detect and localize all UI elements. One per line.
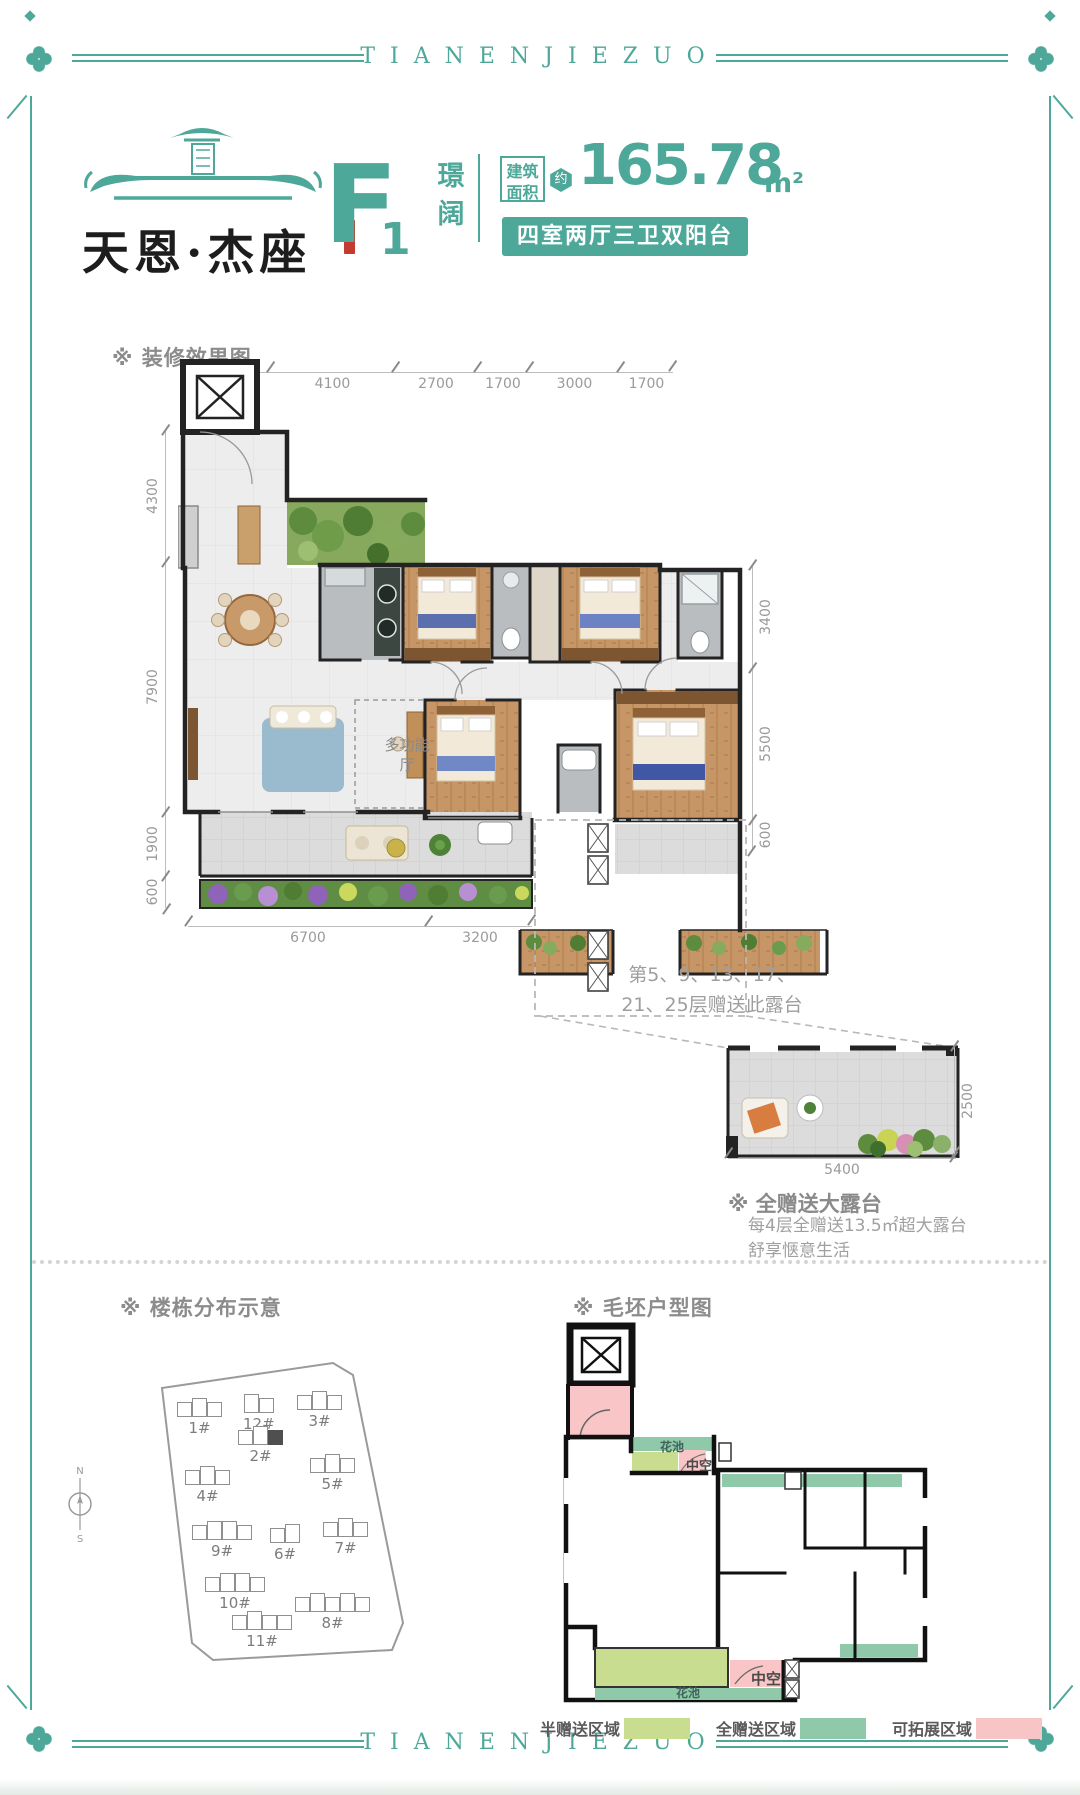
void-label: 中空 — [742, 1668, 790, 1689]
pavilion-roof-logo-icon — [84, 118, 352, 210]
terrace-floors-note: 第5、9、13、17、 21、25层赠送此露台 — [612, 960, 812, 1020]
building-8: 8# — [295, 1593, 370, 1632]
unit-alias: 璟阔 — [436, 158, 466, 234]
dim-label: 7900 — [145, 669, 161, 705]
dim-label: 5400 — [824, 1162, 860, 1178]
terrace-desc: 每4层全赠送13.5㎡超大露台 舒享惬意生活 — [748, 1214, 967, 1264]
dining-table-icon — [212, 594, 289, 647]
legend-swatch — [800, 1718, 866, 1739]
building-7: 7# — [323, 1518, 368, 1557]
area-value: 165.78 — [578, 138, 782, 194]
dim-label: 4300 — [145, 478, 161, 514]
ac-unit-icons — [588, 824, 608, 991]
building-3: 3# — [297, 1391, 342, 1430]
corner-flourish — [7, 95, 28, 119]
building-9: 9# — [192, 1521, 252, 1560]
building-4: 4# — [185, 1466, 230, 1505]
building-11: 11# — [232, 1611, 292, 1650]
flower-bed-label: 花池 — [652, 1438, 692, 1455]
clover-ornament-icon — [1028, 46, 1054, 72]
building-2-highlighted: 2# — [238, 1426, 283, 1465]
section-title-site: ※ 楼栋分布示意 — [120, 1292, 282, 1322]
frame-left-line — [30, 96, 32, 1710]
bed-icon — [437, 706, 495, 781]
area-unit: m² — [764, 168, 804, 199]
flower-bed-label: 花池 — [668, 1684, 708, 1701]
terrace-detail-drawing — [726, 1045, 958, 1158]
dim-label: 1900 — [145, 826, 161, 862]
site-map: 1# 12# 3# 2# 4# 5# 9# 6# — [120, 1360, 450, 1690]
clover-ornament-icon — [26, 46, 52, 72]
legend-swatch — [624, 1718, 690, 1739]
corner-flourish — [7, 1685, 28, 1709]
corner-diamond — [1044, 10, 1055, 21]
dim-label: 600 — [145, 879, 161, 906]
legend-item-full-gift: 全赠送区域 — [716, 1716, 866, 1740]
approx-hexagon-badge: 约 — [549, 168, 573, 192]
dims-terrace-depth: 2500 — [954, 1046, 980, 1156]
brand-name: 天恩·杰座 — [82, 214, 311, 283]
toilet-icon — [502, 628, 520, 650]
compass-icon: N S — [58, 1466, 102, 1546]
area-label-box: 建筑 面积 — [500, 156, 545, 202]
unit-model-index: 1 — [380, 218, 411, 262]
bathtub-icon — [562, 750, 596, 770]
corner-flourish — [1053, 95, 1074, 119]
alias-divider — [478, 154, 480, 242]
area-label-line1: 建筑 — [502, 161, 543, 182]
closet-floor — [530, 565, 560, 662]
brochure-page: TIANENJIEZUO TIANENJIEZUO 天恩·杰座 F 1 璟阔 建… — [0, 0, 1080, 1795]
corner-diamond — [24, 10, 35, 21]
legend: 半赠送区域 全赠送区域 可拓展区域 — [540, 1716, 1042, 1740]
legend-swatch — [976, 1718, 1042, 1739]
legend-item-half-gift: 半赠送区域 — [540, 1716, 690, 1740]
area-label-line2: 面积 — [502, 182, 543, 203]
flower-bed — [200, 880, 532, 908]
layout-badge: 四室两厅三卫双阳台 — [502, 217, 748, 256]
legend-item-expandable: 可拓展区域 — [892, 1716, 1042, 1740]
dims-terrace-width: 5400 — [728, 1158, 956, 1178]
building-1: 1# — [177, 1398, 222, 1437]
bottom-edge-band — [0, 1779, 1080, 1795]
elevator-shaft-icon — [183, 362, 257, 432]
bare-floor-plan-drawing — [485, 1318, 940, 1708]
section-divider — [32, 1260, 1048, 1264]
decorated-floor-plan-drawing — [178, 356, 978, 1168]
corner-flourish — [1053, 1685, 1074, 1709]
dim-label: 2500 — [960, 1083, 976, 1119]
frame-right-line — [1049, 96, 1051, 1710]
dims-left: 4300 7900 1900 600 — [140, 430, 166, 908]
multifunction-room-label: 多功能厅 — [383, 735, 431, 775]
clover-ornament-icon — [26, 1726, 52, 1752]
header-wordmark: TIANENJIEZUO — [0, 44, 1080, 69]
building-10: 10# — [205, 1573, 265, 1612]
void-label: 中空 — [678, 1455, 720, 1474]
building-5: 5# — [310, 1454, 355, 1493]
building-6: 6# — [270, 1524, 300, 1563]
